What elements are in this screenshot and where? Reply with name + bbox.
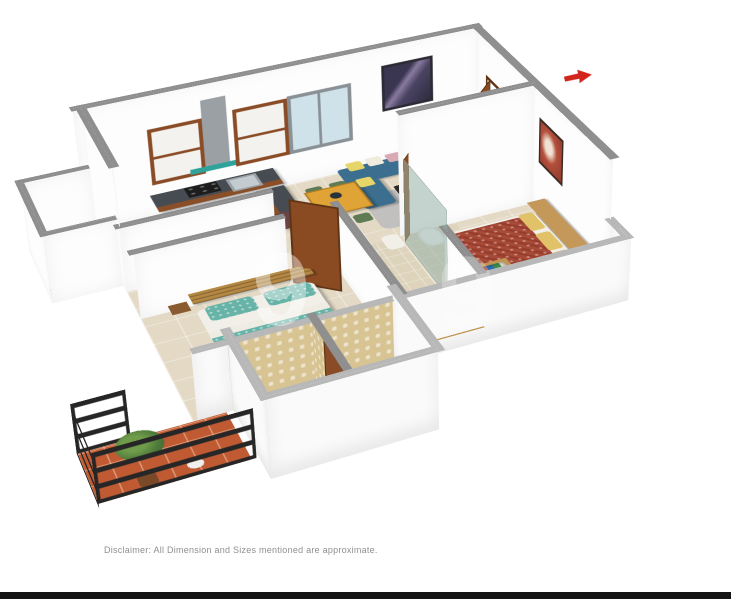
wall-utility-south xyxy=(43,216,124,303)
fascia-southwest xyxy=(191,342,233,420)
window-sash xyxy=(317,93,322,144)
chimney-hood xyxy=(200,95,230,168)
disclaimer-text: Disclaimer: All Dimension and Sizes ment… xyxy=(104,545,378,555)
floor-plane xyxy=(95,141,625,421)
kitchen-wall-cabinet-right xyxy=(232,98,290,166)
footer-bar xyxy=(0,592,731,599)
kitchen-wall-cabinet-left xyxy=(147,118,206,185)
living-window xyxy=(287,83,353,155)
master-artwork xyxy=(539,117,564,187)
floor-plan-scene xyxy=(0,0,731,599)
floor-plan-image: 9 9 Disclaimer: All Dimension and Sizes … xyxy=(0,0,731,599)
